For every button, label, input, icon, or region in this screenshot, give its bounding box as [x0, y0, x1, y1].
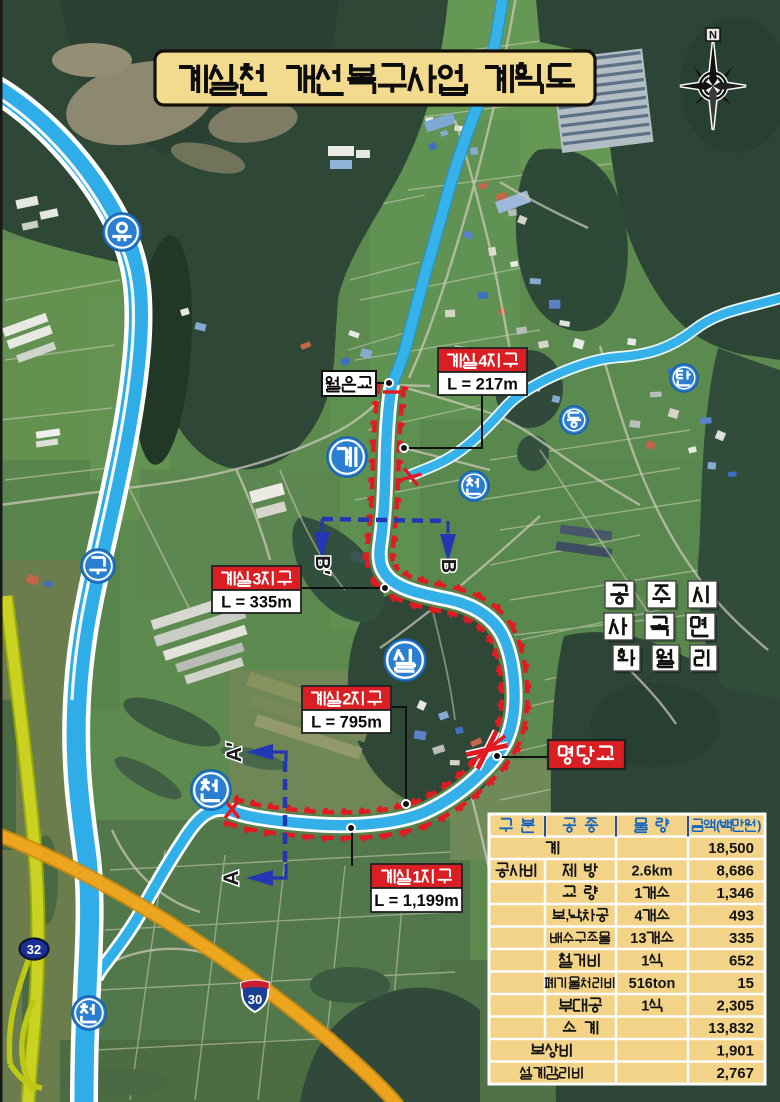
svg-text:493: 493 — [729, 908, 754, 925]
svg-text:2.6km: 2.6km — [631, 863, 672, 879]
svg-text:B: B — [437, 559, 459, 573]
svg-text:13: 13 — [630, 931, 646, 947]
svg-text:516ton: 516ton — [629, 976, 676, 992]
svg-text:2: 2 — [342, 690, 351, 708]
svg-text:4: 4 — [634, 908, 642, 924]
svg-text:2,305: 2,305 — [716, 998, 754, 1015]
svg-text:L = 1,199m: L = 1,199m — [374, 892, 459, 910]
svg-text:): ) — [757, 818, 761, 833]
svg-text:A: A — [220, 870, 243, 885]
svg-text:1: 1 — [634, 886, 642, 902]
svg-text:L = 217m: L = 217m — [447, 375, 518, 393]
svg-text:1: 1 — [412, 868, 421, 886]
svg-text:1,901: 1,901 — [716, 1043, 754, 1060]
svg-text:4: 4 — [478, 352, 487, 370]
svg-text:2,767: 2,767 — [716, 1065, 754, 1082]
svg-text:A′: A′ — [223, 742, 246, 762]
svg-text:15: 15 — [737, 975, 754, 992]
svg-text:30: 30 — [248, 992, 262, 1007]
svg-text:B′: B′ — [311, 555, 333, 574]
svg-text:L = 795m: L = 795m — [311, 713, 382, 731]
svg-text:N: N — [709, 30, 717, 42]
svg-text:3: 3 — [252, 570, 261, 588]
svg-text:32: 32 — [27, 942, 41, 957]
svg-text:335: 335 — [729, 930, 754, 947]
svg-text:13,832: 13,832 — [708, 1020, 754, 1037]
svg-text:1: 1 — [641, 999, 649, 1015]
svg-text:8,686: 8,686 — [716, 863, 754, 880]
svg-text:652: 652 — [729, 953, 754, 970]
svg-text:1: 1 — [641, 953, 649, 969]
svg-text:1,346: 1,346 — [716, 885, 754, 902]
svg-text:18,500: 18,500 — [708, 840, 754, 857]
svg-text:L = 335m: L = 335m — [221, 593, 292, 611]
